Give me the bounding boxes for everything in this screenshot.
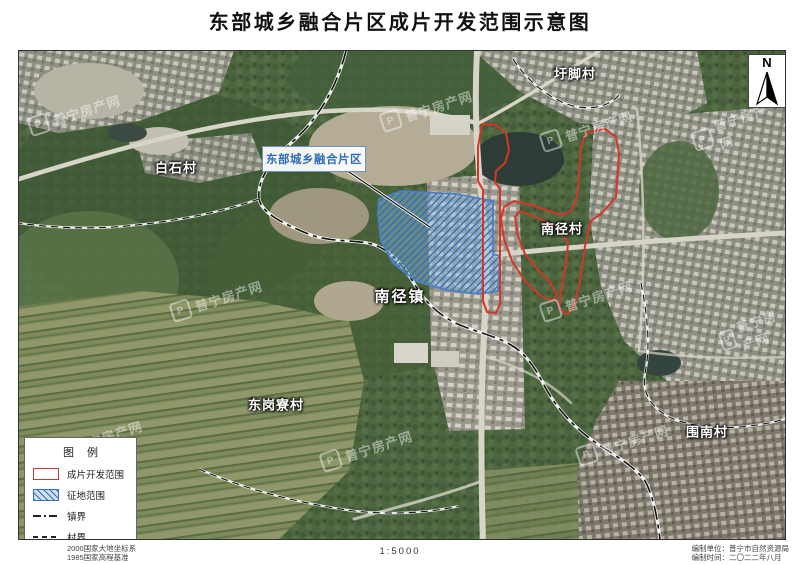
map-label-nanjing-village: 南径村: [541, 219, 583, 238]
compass-needle-icon: [752, 70, 782, 106]
legend-box: 图 例 成片开发范围 征地范围 镇界 村界: [24, 437, 137, 540]
credit-line2: 编制时间：二〇二二年八月: [692, 553, 790, 562]
credit-line1: 编制单位：普宁市自然资源局: [692, 544, 790, 553]
map-label-weinan-village: 围南村: [686, 422, 728, 441]
north-arrow: N: [748, 54, 786, 108]
north-label: N: [762, 56, 771, 70]
legend-title: 图 例: [33, 444, 128, 460]
land-acquisition-area: [378, 191, 500, 294]
legend-item-village-boundary: 村界: [33, 530, 128, 540]
map-label-baishi-village: 白石村: [155, 158, 197, 177]
map-label-nanjing-town: 南径镇: [374, 286, 425, 307]
area-callout: 东部城乡融合片区: [262, 146, 366, 172]
map-label-donggangliao-village: 东岗寮村: [248, 395, 304, 414]
area-callout-text: 东部城乡融合片区: [266, 151, 362, 167]
legend-item-town-boundary: 镇界: [33, 509, 128, 523]
map-scale: 1:5000: [0, 546, 800, 557]
village-boundary-swatch-icon: [33, 536, 59, 538]
town-boundary-line: [259, 51, 660, 539]
map-label-xujiao-village: 圩脚村: [554, 64, 596, 83]
acquisition-scope-swatch-icon: [33, 489, 59, 501]
legend-item-development: 成片开发范围: [33, 467, 128, 481]
schematic-map-page: 东部城乡融合片区成片开发范围示意图: [0, 0, 800, 565]
legend-item-acquisition: 征地范围: [33, 488, 128, 502]
credit-note: 编制单位：普宁市自然资源局 编制时间：二〇二二年八月: [692, 544, 790, 562]
town-boundary-swatch-icon: [33, 515, 59, 517]
development-scope-swatch-icon: [33, 468, 59, 480]
page-title: 东部城乡融合片区成片开发范围示意图: [0, 6, 800, 35]
map-canvas: P普宁房产网P普宁房产网P普宁房产网P普宁房产网P普宁房产网P普宁房产网P普宁房…: [18, 50, 786, 540]
